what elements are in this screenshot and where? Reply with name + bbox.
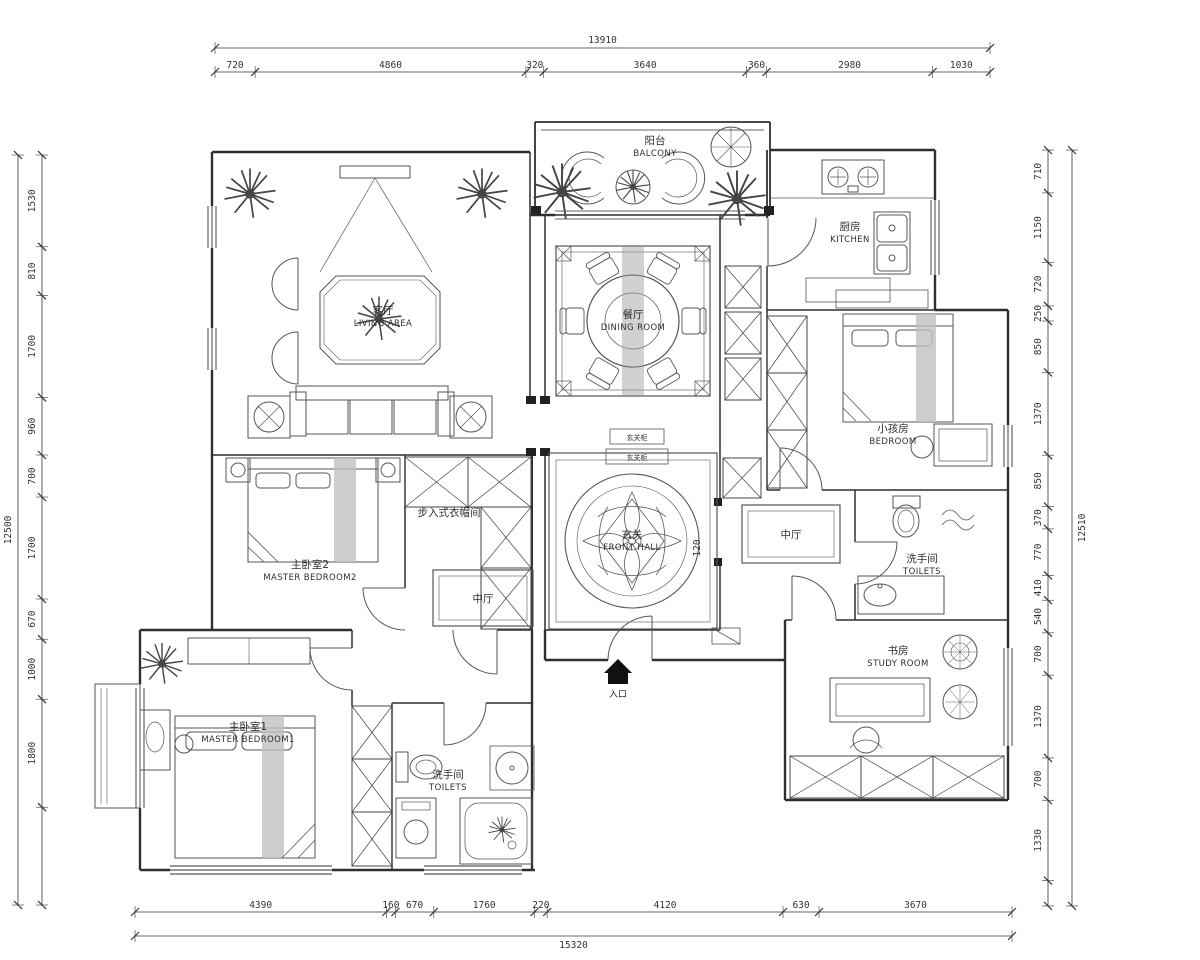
console-arc-1 (272, 258, 298, 310)
floor-plan-page: 1391072048603203640360298010301532043901… (0, 0, 1200, 960)
dining-room (556, 246, 710, 396)
desk-chair (850, 727, 882, 753)
dim-label: 1700 (27, 536, 38, 559)
medallion-ornament (583, 492, 681, 590)
study-door (792, 576, 836, 620)
bay-window (95, 684, 140, 808)
master-bedroom2-label-en: MASTER BEDROOM2 (263, 573, 357, 583)
dim-label: 4860 (379, 60, 402, 71)
nightstand (226, 458, 250, 482)
side-table-left (248, 396, 290, 438)
plant-icon (534, 164, 591, 219)
dim-label: 700 (27, 467, 38, 484)
dim-label: 670 (406, 900, 423, 911)
balcony-label-en: BALCONY (633, 149, 677, 159)
sofa-back (296, 386, 448, 400)
closet-label: 步入式衣帽间 (418, 506, 481, 519)
entry-door (608, 616, 652, 660)
dim-label: 1530 (27, 189, 38, 212)
dim-label: 160 (382, 900, 399, 911)
dim-label: 1800 (27, 741, 38, 764)
toilets-bottom (396, 746, 534, 864)
rattan-chair-2 (943, 685, 977, 719)
toilets-bottom-label-en: TOILETS (428, 783, 467, 793)
tv-unit (340, 166, 410, 178)
shower-icon (942, 510, 974, 530)
plant-icon (709, 171, 766, 226)
sofa-arm-left (290, 392, 306, 436)
projection-lines (320, 178, 432, 272)
plant-icon (225, 169, 276, 218)
cabinet-callout-2-label: 玄关柜 (627, 453, 648, 462)
console-arc-2 (272, 332, 298, 384)
round-basin-icon (490, 746, 534, 790)
master-bedroom1-door (310, 648, 352, 690)
dim-label: 3670 (904, 900, 927, 911)
dim-label: 15320 (559, 940, 588, 951)
sink-icon (874, 212, 910, 274)
kitchen-label-en: KITCHEN (830, 235, 870, 245)
meter-box (712, 628, 740, 644)
floor-plan-svg: 1391072048603203640360298010301532043901… (0, 0, 1200, 960)
kitchen (770, 160, 935, 308)
balcony-label-cn: 阳台 (645, 134, 666, 147)
hall-mid-right-label: 中厅 (781, 528, 802, 541)
dim-label: 670 (27, 610, 38, 627)
toilets-right-door (855, 542, 897, 584)
front-hall-label-en: FRONT HALL (603, 543, 660, 553)
toilets-right-label-en: TOILETS (902, 567, 941, 577)
sofa-arm-right (438, 392, 454, 436)
master-bedroom1-label-cn: 主卧室1 (229, 720, 267, 733)
living-room (225, 166, 508, 438)
dim-label: 850 (1033, 338, 1044, 355)
living-label-en: LIVING AREA (354, 319, 413, 329)
child-bedroom-label-en: BEDROOM (869, 437, 916, 447)
toilets-bottom-door (444, 703, 486, 745)
kitchen-door (768, 218, 816, 266)
toilet-icon (893, 496, 920, 537)
dim-label: 700 (1033, 770, 1044, 787)
dim-label: 12510 (1077, 513, 1088, 542)
hall-dim-label: 120 (692, 539, 703, 556)
nightstand (376, 458, 400, 482)
desk (934, 424, 992, 466)
dim-label: 1370 (1033, 705, 1044, 728)
sofa-seat-2 (350, 400, 392, 434)
dim-label: 4390 (249, 900, 272, 911)
dim-label: 720 (226, 60, 243, 71)
dim-label: 810 (27, 262, 38, 279)
dim-label: 1030 (950, 60, 973, 71)
child-bedroom (843, 314, 992, 466)
bed (843, 314, 953, 422)
dim-label: 2980 (838, 60, 861, 71)
study-label-cn: 书房 (888, 644, 909, 657)
study-label-en: STUDY ROOM (867, 659, 928, 669)
washbasin-icon (858, 576, 944, 614)
dim-label: 710 (1033, 163, 1044, 180)
dining-label-cn: 餐厅 (623, 308, 644, 321)
dim-label: 1150 (1033, 216, 1044, 239)
dim-label: 700 (1033, 645, 1044, 662)
dim-label: 720 (1033, 275, 1044, 292)
living-label-cn: 客厅 (373, 304, 394, 317)
study-desk (830, 678, 930, 722)
toilets-bottom-label-cn: 洗手间 (432, 768, 464, 781)
dim-label: 1700 (27, 335, 38, 358)
dim-label: 1760 (473, 900, 496, 911)
master-bedroom2-door (363, 588, 405, 630)
round-tree-icon (711, 127, 751, 167)
master-bedroom1-label-en: MASTER BEDROOM1 (201, 735, 295, 745)
entry-marker-icon (604, 659, 632, 684)
dim-label: 4120 (654, 900, 677, 911)
dim-label: 1330 (1033, 829, 1044, 852)
plant-icon (457, 169, 508, 218)
child-bedroom-label-cn: 小孩房 (877, 422, 909, 435)
table-plant-icon (617, 171, 650, 203)
hall-mid-left-label: 中厅 (473, 592, 494, 605)
washing-machine (396, 798, 436, 858)
cabinet-callout-1-label: 玄关柜 (627, 433, 648, 442)
dim-label: 13910 (588, 35, 617, 46)
child-bedroom-door (780, 448, 822, 490)
dim-label: 630 (792, 900, 809, 911)
dim-label: 540 (1033, 608, 1044, 625)
dim-label: 360 (748, 60, 765, 71)
bed-runner (334, 458, 356, 562)
dining-label-en: DINING ROOM (601, 323, 666, 333)
master-bedroom-1 (95, 638, 315, 858)
dim-label: 1000 (27, 657, 38, 680)
entry-label: 入口 (609, 689, 627, 700)
closet-door (453, 630, 497, 674)
table-runner (622, 246, 644, 396)
dim-label: 770 (1033, 543, 1044, 560)
dim-label: 1370 (1033, 402, 1044, 425)
dim-label: 250 (1033, 305, 1044, 322)
sofa-seat-3 (394, 400, 436, 434)
stove-icon (822, 160, 884, 194)
sofa-seat-1 (306, 400, 348, 434)
rattan-chair-1 (943, 635, 977, 669)
side-table-right (450, 396, 492, 438)
dim-label: 850 (1033, 472, 1044, 489)
dim-label: 370 (1033, 509, 1044, 526)
shower-tub (460, 798, 532, 864)
dresser (140, 710, 193, 770)
dim-label: 960 (27, 417, 38, 434)
dim-label: 3640 (634, 60, 657, 71)
toilets-right-label-cn: 洗手间 (906, 552, 938, 565)
master-bedroom2-label-cn: 主卧室2 (291, 558, 329, 571)
master-bedroom-2 (226, 458, 400, 562)
bed-runner (916, 314, 936, 422)
plant-icon (141, 643, 183, 684)
front-hall-label-cn: 玄关 (622, 528, 643, 541)
bed (248, 458, 378, 562)
dim-label: 12500 (3, 515, 14, 544)
kitchen-label-cn: 厨房 (840, 220, 861, 233)
dim-label: 410 (1033, 579, 1044, 596)
dim-label: 320 (526, 60, 543, 71)
